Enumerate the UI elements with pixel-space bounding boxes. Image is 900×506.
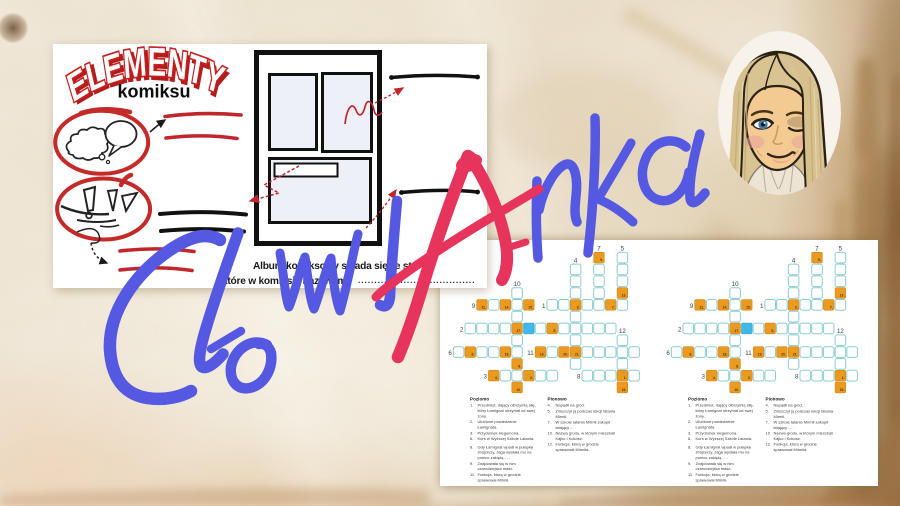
svg-text:które w komiksie nazywamy: które w komiksie nazywamy (222, 276, 352, 287)
svg-text:komiksu: komiksu (117, 82, 190, 102)
svg-text:..............................: .................................... (358, 275, 475, 285)
svg-text:Album komiksowy składa się ze: Album komiksowy składa się ze stron, (253, 261, 430, 272)
